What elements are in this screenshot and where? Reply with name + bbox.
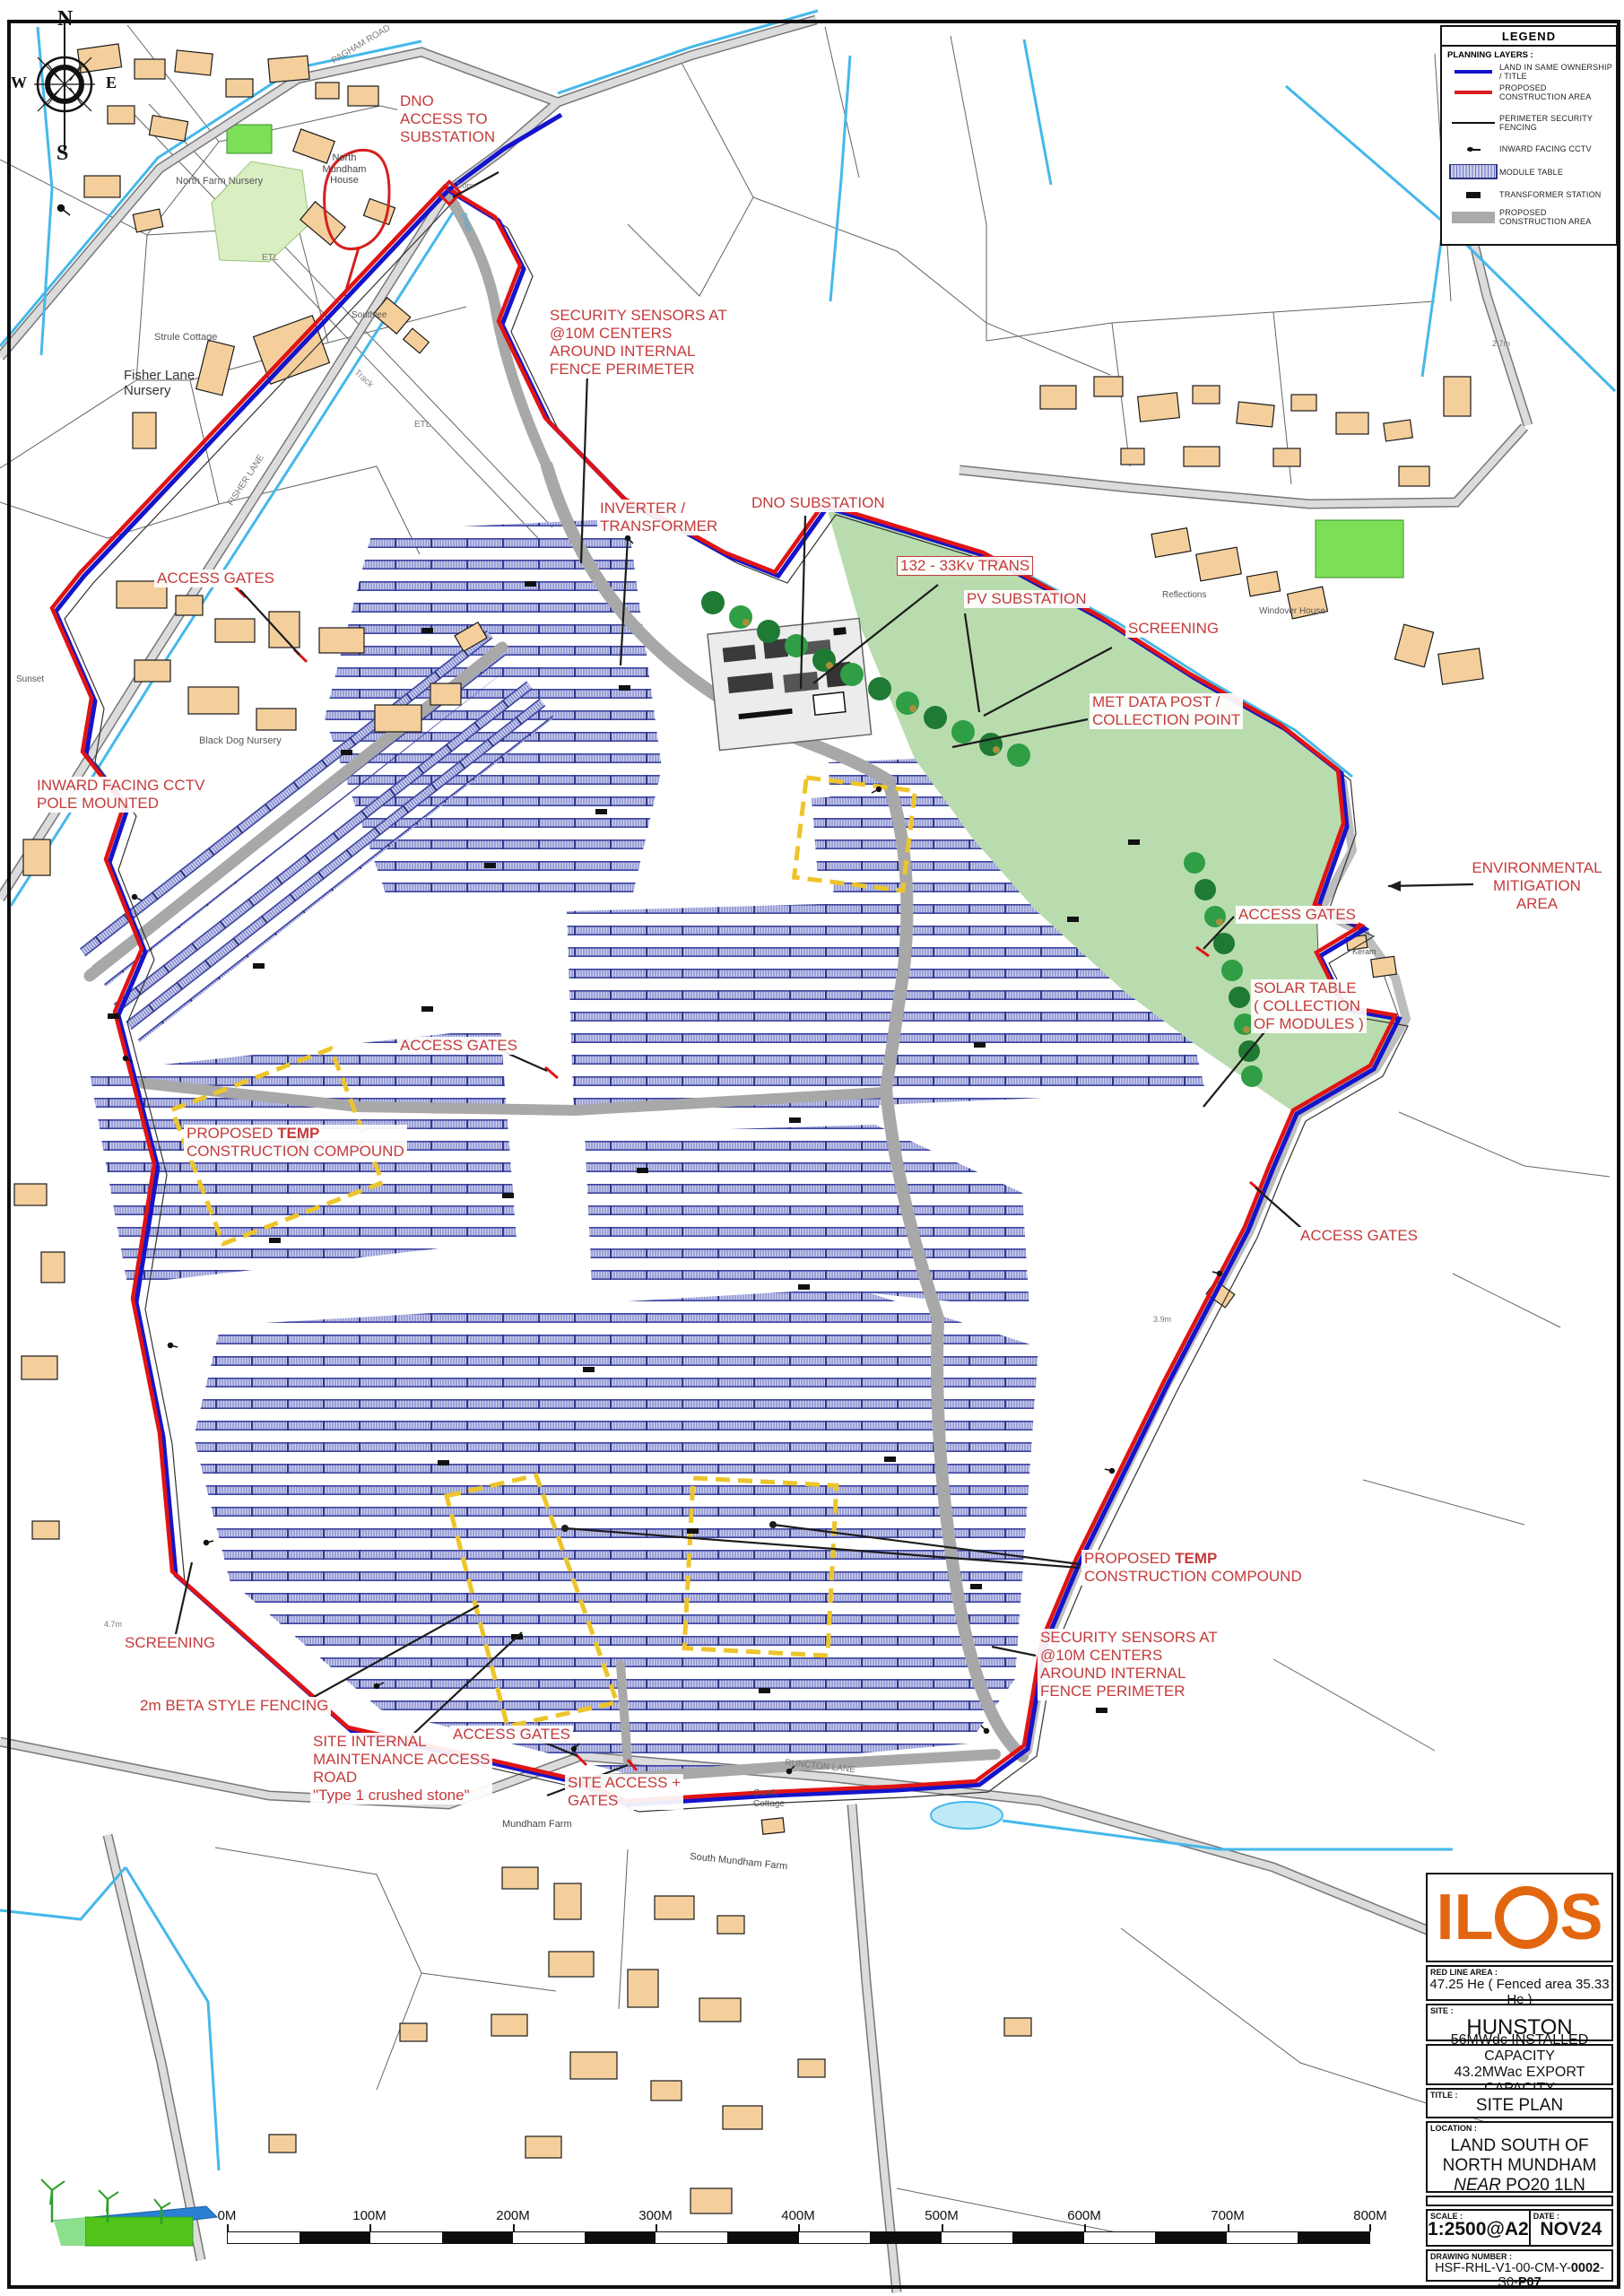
label-mundham-farm: Mundham Farm: [502, 1819, 572, 1831]
spare-box: [1426, 2196, 1613, 2206]
scale-label-500: 500M: [910, 2208, 973, 2223]
annotation-inverter-transformer: INVERTER / TRANSFORMER: [597, 500, 720, 535]
temp-bold: TEMP: [1175, 1550, 1217, 1567]
compass-e: E: [106, 74, 117, 92]
label-black-dog-nursery: Black Dog Nursery: [199, 735, 282, 747]
annotation-met-data-post: MET DATA POST / COLLECTION POINT: [1090, 693, 1243, 729]
date-value: NOV24: [1531, 2219, 1611, 2240]
annotation-pv-substation: PV SUBSTATION: [964, 590, 1090, 608]
annotation-access-gates-mid: ACCESS GATES: [397, 1037, 520, 1055]
annotation-dno-substation: DNO SUBSTATION: [749, 494, 888, 512]
scale-label-600: 600M: [1053, 2208, 1116, 2223]
legend-item-module-table: MODULE TABLE: [1447, 164, 1616, 179]
annotation-access-gates-nw: ACCESS GATES: [154, 570, 277, 587]
label-fisher-lane-nursery: Fisher Lane Nursery: [124, 368, 195, 399]
compass-w: W: [11, 74, 27, 92]
transformer-icon: [1447, 192, 1499, 198]
module-table-icon: [1447, 164, 1499, 179]
cctv-icon: [1447, 146, 1499, 152]
date-cell: DATE : NOV24: [1531, 2211, 1611, 2245]
legend-item-construction-area: PROPOSED CONSTRUCTION AREA: [1447, 208, 1616, 226]
label-southlee: Southlee: [352, 310, 386, 321]
annotation-132-33kv-trans: 132 - 33Kv TRANS: [897, 556, 1033, 576]
scale-label-0: 0M: [195, 2208, 258, 2223]
label-spot-height-1: 7.0m: [456, 181, 473, 190]
compass-n: N: [57, 7, 73, 31]
location-line2: NORTH MUNDHAM: [1428, 2156, 1611, 2176]
legend-item-ownership: LAND IN SAME OWNERSHIP / TITLE: [1447, 63, 1616, 81]
green-patch-small: [227, 125, 272, 153]
scale-label-300: 300M: [624, 2208, 687, 2223]
label-north-farm-nursery: North Farm Nursery: [176, 176, 263, 187]
label-windover-house: Windover House: [1259, 606, 1325, 617]
annotation-security-sensors-right: SECURITY SENSORS AT @10M CENTERS AROUND …: [1038, 1629, 1220, 1700]
scale-label-400: 400M: [767, 2208, 829, 2223]
capacity-line1: 56MWdc INSTALLED CAPACITY: [1428, 2032, 1611, 2065]
temp-pre: PROPOSED: [1084, 1550, 1175, 1567]
annotation-temp-compound-left: PROPOSED TEMPCONSTRUCTION COMPOUND: [184, 1125, 407, 1161]
red-line-area-box: RED LINE AREA : 47.25 He ( Fenced area 3…: [1426, 1965, 1613, 2001]
fence-line-icon: [1447, 122, 1499, 124]
location-line3: NEAR PO20 1LN: [1428, 2176, 1611, 2196]
legend-item-transformer: TRANSFORMER STATION: [1447, 190, 1616, 199]
legend-section-title: PLANNING LAYERS :: [1447, 50, 1616, 60]
pond: [931, 1802, 1003, 1829]
red-line-icon: [1447, 91, 1499, 94]
label-strule-cottage: Strule Cottage: [154, 332, 217, 344]
legend-item-cctv: INWARD FACING CCTV: [1447, 144, 1616, 153]
scale-label-200: 200M: [482, 2208, 544, 2223]
label-sunset: Sunset: [16, 674, 44, 685]
annotation-access-gates-east: ACCESS GATES: [1298, 1227, 1420, 1245]
legend-item-construction-line: PROPOSED CONSTRUCTION AREA: [1447, 83, 1616, 101]
annotation-temp-compound-right: PROPOSED TEMPCONSTRUCTION COMPOUND: [1081, 1550, 1305, 1586]
annotation-environmental-area: ENVIRONMENTAL MITIGATION AREA: [1467, 859, 1607, 913]
drawing-number-box: DRAWING NUMBER : HSF-RHL-V1-00-CM-Y-0002…: [1426, 2249, 1613, 2282]
temp-line2: CONSTRUCTION COMPOUND: [1084, 1568, 1302, 1585]
compass-s: S: [56, 142, 68, 166]
legend-title: LEGEND: [1442, 27, 1616, 47]
label-spot-height-3: 3.9m: [1153, 1315, 1171, 1324]
ilos-logo: ILS: [1426, 1873, 1613, 1962]
annotation-inward-cctv: INWARD FACING CCTV POLE MOUNTED: [34, 777, 207, 813]
temp-bold: TEMP: [277, 1125, 319, 1142]
annotation-screening-left: SCREENING: [122, 1634, 218, 1652]
red-line-area-value: 47.25 He ( Fenced area 35.33 He ): [1428, 1977, 1611, 2007]
green-patch-ne: [1316, 520, 1403, 578]
annotation-solar-table: SOLAR TABLE ( COLLECTION OF MODULES ): [1251, 979, 1367, 1033]
label-camic-cottage: Camic Cottage: [753, 1788, 785, 1809]
location-box: LOCATION : LAND SOUTH OF NORTH MUNDHAM N…: [1426, 2121, 1613, 2193]
ilos-ring-icon: [1495, 1886, 1558, 1949]
scale-cell: SCALE : 1:2500@A2: [1428, 2211, 1531, 2245]
temp-pre: PROPOSED: [187, 1125, 277, 1142]
scale-date-row: SCALE : 1:2500@A2 DATE : NOV24: [1426, 2209, 1613, 2247]
label-etl-1: ETL: [414, 420, 430, 430]
location-line1: LAND SOUTH OF: [1428, 2136, 1611, 2156]
scale-bar: 0M 100M 200M 300M 400M 500M 600M 700M 80…: [0, 2197, 1426, 2260]
gray-area-icon: [1447, 212, 1499, 223]
annotation-screening-right: SCREENING: [1125, 620, 1221, 638]
label-spot-height-2: 4.7m: [104, 1620, 122, 1629]
label-keram: Keram: [1352, 947, 1376, 956]
legend-panel: LEGEND PLANNING LAYERS : LAND IN SAME OW…: [1440, 25, 1618, 246]
drawing-number-value: HSF-RHL-V1-00-CM-Y-0002-S0-P07: [1428, 2261, 1611, 2290]
scale-label-100: 100M: [338, 2208, 401, 2223]
scale-bar-segments: [227, 2231, 1370, 2244]
annotation-site-access-gates: SITE ACCESS + GATES: [565, 1774, 683, 1810]
title-block: ILS RED LINE AREA : 47.25 He ( Fenced ar…: [1426, 1873, 1613, 2284]
site-plan-page: N S W E DNO ACCESS TO SUBSTATION SECURIT…: [0, 0, 1624, 2296]
annotation-beta-fencing: 2m BETA STYLE FENCING: [137, 1697, 331, 1715]
scale-label-700: 700M: [1196, 2208, 1259, 2223]
label-spot-height-4: 2.7m: [1492, 339, 1510, 348]
capacity-box: 56MWdc INSTALLED CAPACITY 43.2MWac EXPOR…: [1426, 2044, 1613, 2085]
label-reflections: Reflections: [1162, 590, 1206, 601]
label-etl-2: ETL: [262, 253, 278, 264]
annotation-access-gates-south: ACCESS GATES: [450, 1726, 573, 1744]
scale-value: 1:2500@A2: [1428, 2219, 1529, 2240]
annotation-dno-access: DNO ACCESS TO SUBSTATION: [397, 92, 498, 146]
legend-item-fencing: PERIMETER SECURITY FENCING: [1447, 114, 1616, 132]
annotation-access-gates-green: ACCESS GATES: [1236, 906, 1359, 924]
scale-label-800: 800M: [1339, 2208, 1402, 2223]
annotation-security-sensors-top: SECURITY SENSORS AT @10M CENTERS AROUND …: [547, 307, 730, 378]
temp-line2: CONSTRUCTION COMPOUND: [187, 1143, 404, 1160]
title-box: TITLE : SITE PLAN: [1426, 2088, 1613, 2118]
blue-line-icon: [1447, 70, 1499, 74]
label-north-mundham-house: North Mundham House: [312, 152, 377, 187]
